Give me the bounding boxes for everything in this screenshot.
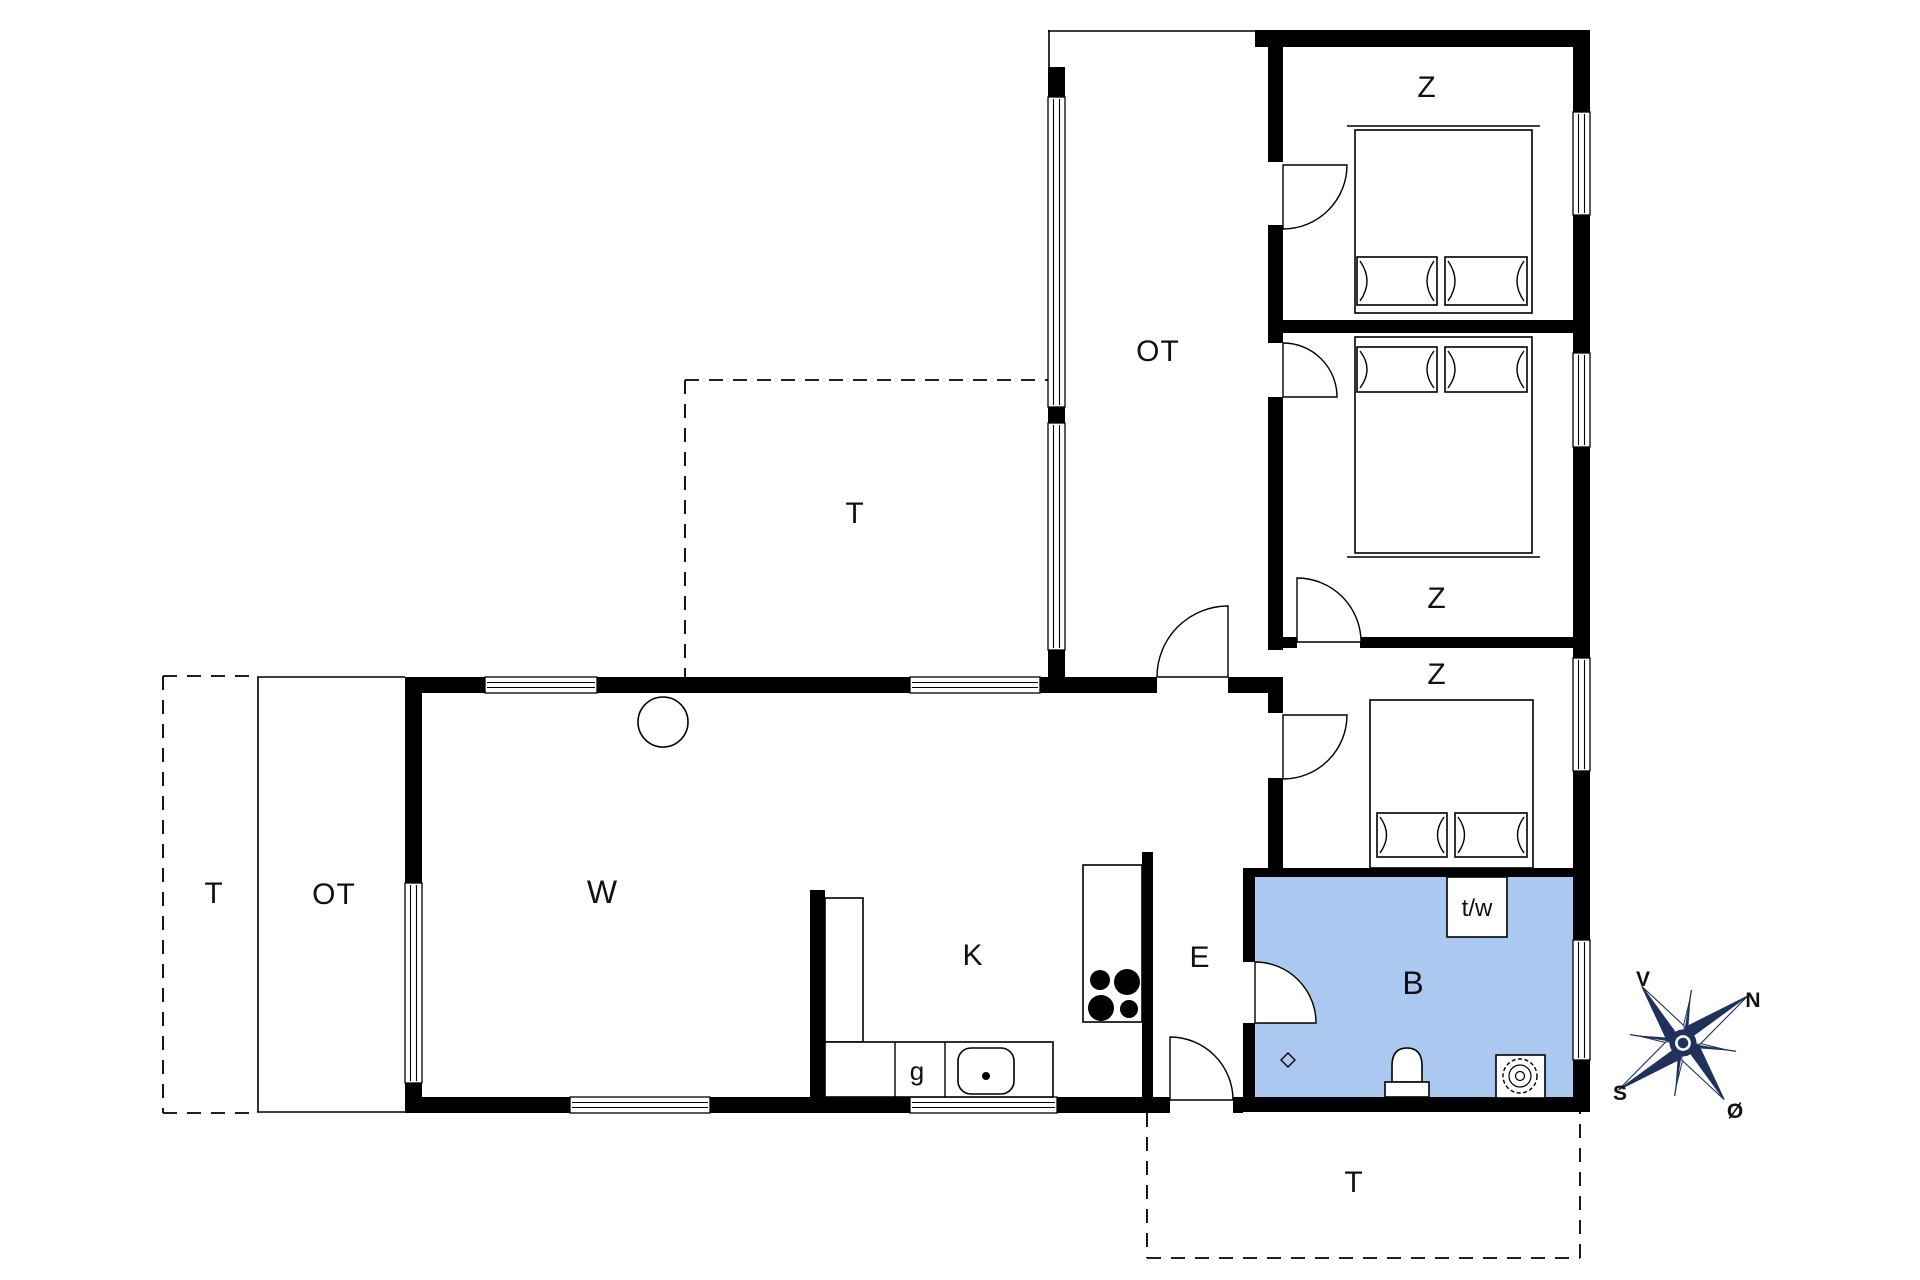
wood-stove-icon <box>638 697 688 747</box>
covered-terrace-west-label: OT <box>312 878 356 911</box>
floor-plan-page: T OT T T W K g E B t/w OT Z Z Z <box>0 0 1920 1280</box>
compass-label-west: V <box>1636 968 1650 991</box>
kitchen-label: K <box>962 939 983 972</box>
bedroom-3-label: Z <box>1427 658 1446 691</box>
terrace-west-label: T <box>204 877 223 910</box>
compass-label-south: S <box>1613 1082 1627 1105</box>
window <box>1573 940 1590 1060</box>
window <box>485 677 597 693</box>
bedroom-2-label: Z <box>1427 582 1446 615</box>
shower-drain-icon <box>1496 1055 1545 1098</box>
entry-label: E <box>1189 941 1210 974</box>
window <box>1573 658 1590 771</box>
window <box>1573 112 1590 215</box>
bathroom-label: B <box>1402 965 1423 1001</box>
compass-label-north: N <box>1745 989 1760 1012</box>
washer-dryer-label: t/w <box>1462 895 1493 922</box>
compass-label-east: Ø <box>1727 1100 1743 1123</box>
corridor-label: OT <box>1136 335 1180 368</box>
wardrobe-label: g <box>910 1056 924 1086</box>
window <box>570 1097 710 1113</box>
window <box>1573 353 1590 447</box>
window <box>1048 97 1065 407</box>
bedroom-1-label: Z <box>1417 71 1436 104</box>
window <box>910 677 1040 693</box>
terrace-south-label: T <box>1344 1166 1363 1199</box>
window <box>910 1097 1057 1113</box>
window <box>1048 423 1065 650</box>
floor-plan: T OT T T W K g E B t/w OT Z Z Z <box>0 0 1920 1280</box>
double-bed-icon <box>1347 337 1540 557</box>
double-bed-icon <box>1364 700 1541 872</box>
terrace-north-label: T <box>845 497 864 530</box>
window <box>405 883 422 1083</box>
double-bed-icon <box>1347 126 1540 313</box>
living-room-label: W <box>587 874 618 910</box>
kitchen-sink-icon <box>958 1048 1014 1094</box>
